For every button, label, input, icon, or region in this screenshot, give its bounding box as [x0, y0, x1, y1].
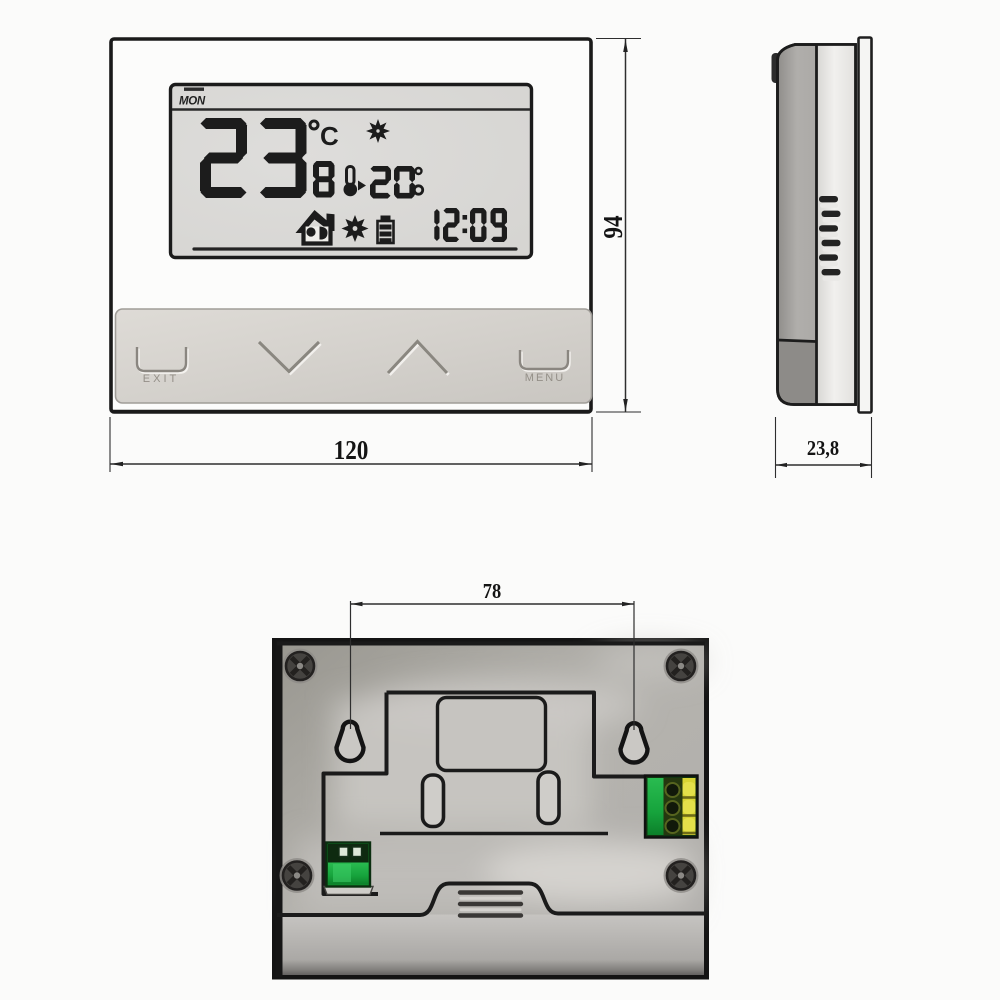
svg-text:EXIT: EXIT [143, 373, 179, 385]
svg-text:MENU: MENU [525, 372, 565, 384]
svg-text:23,8: 23,8 [807, 437, 839, 460]
svg-text:120: 120 [334, 436, 369, 465]
svg-text:94: 94 [599, 215, 628, 239]
svg-text:MON: MON [179, 96, 206, 108]
svg-text:C: C [320, 121, 339, 151]
svg-text:78: 78 [483, 580, 502, 603]
